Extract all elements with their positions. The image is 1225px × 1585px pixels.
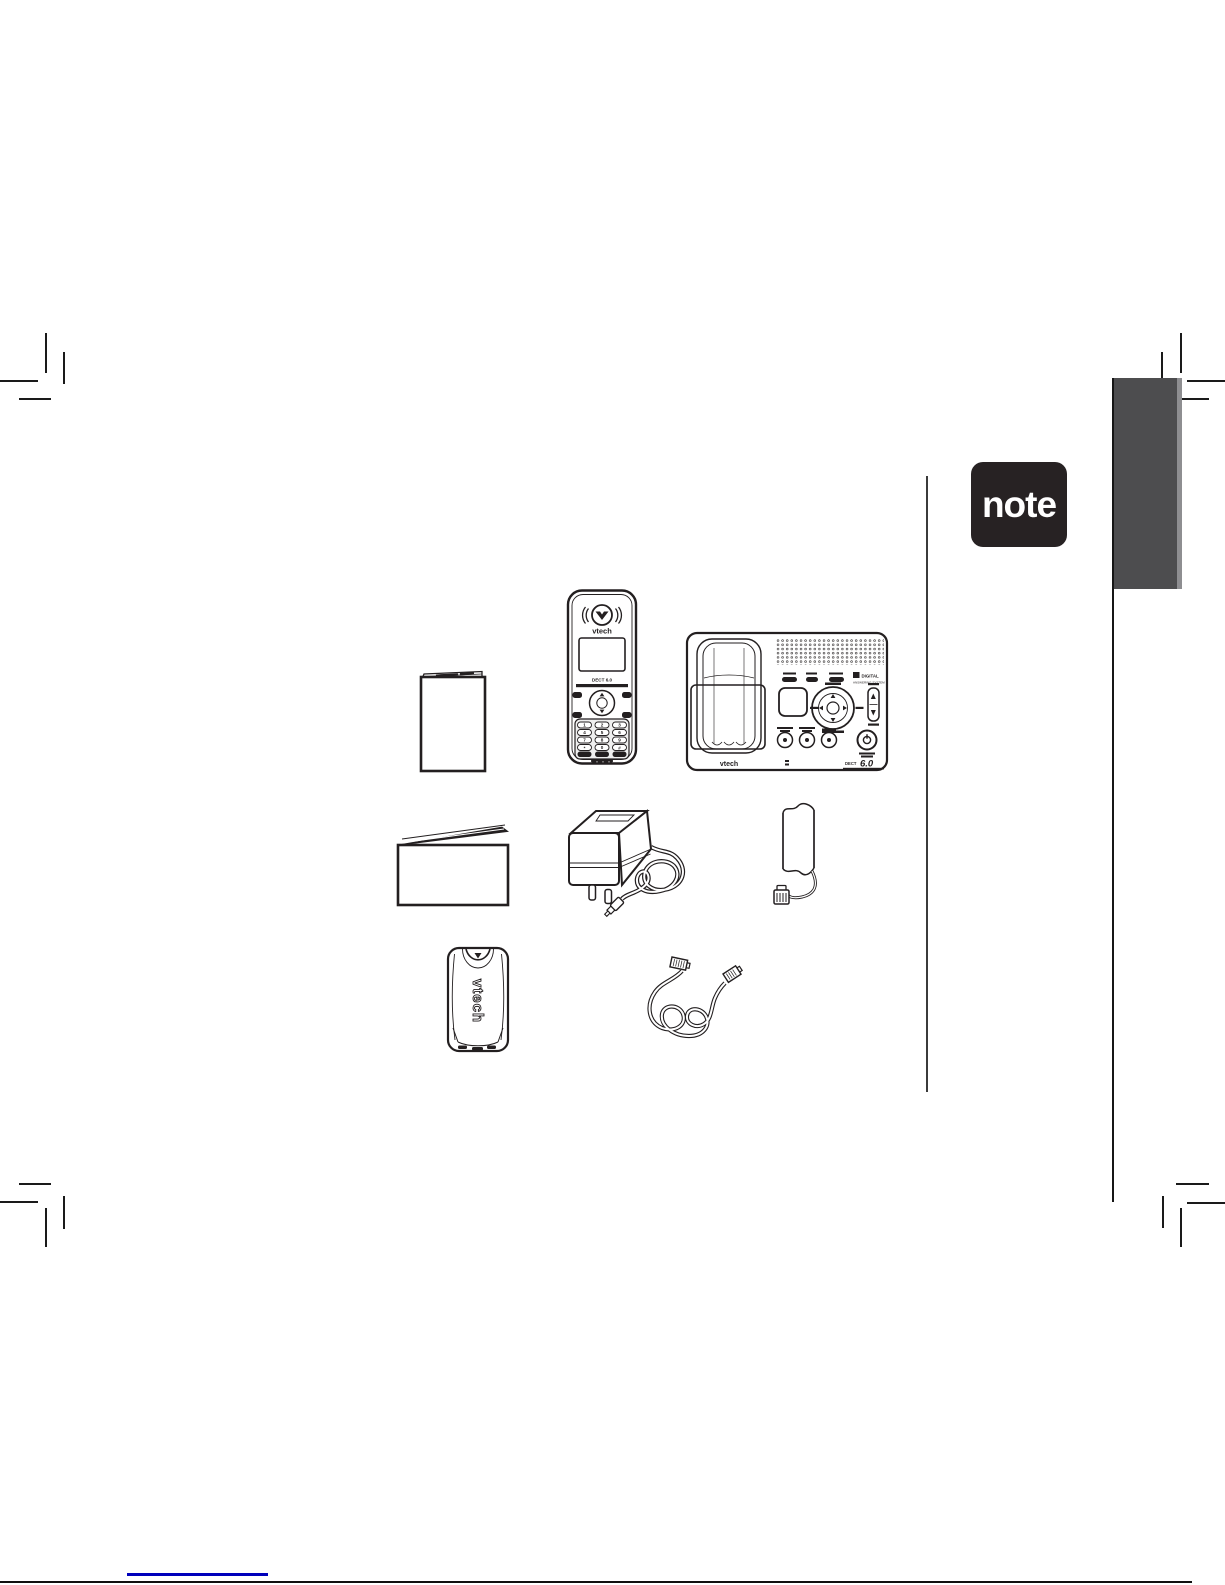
svg-text:2: 2 [601,723,604,728]
base-power-button [858,731,877,758]
svg-text:DIGITAL: DIGITAL [862,673,880,678]
crop-mark [63,1196,65,1229]
svg-text:1: 1 [583,723,586,728]
booklet-portrait-illustration [414,666,492,776]
svg-text:8: 8 [601,738,604,743]
crop-mark [1162,1196,1164,1228]
manual-page: note vtech DECT 6.0 [0,0,1225,1585]
battery-cover-illustration: vtech [441,944,515,1058]
handset-illustration: vtech DECT 6.0 [564,588,640,766]
base-top-buttons [782,673,844,683]
battery-cover-brand-label: vtech [469,979,486,1023]
crop-mark [1176,1183,1209,1185]
base-display-button [779,688,807,716]
svg-text:4: 4 [583,730,586,735]
page-bottom-edge [0,1581,1192,1583]
base-cradle [691,639,765,753]
battery-connector [774,886,789,905]
adapter-front-face [569,833,619,885]
power-adapter-illustration [556,800,701,920]
base-round-buttons [777,727,837,748]
telephone-cord-illustration [622,952,748,1058]
base-volume-rocker [868,683,879,726]
battery-wire [789,871,816,898]
svg-text:DECT: DECT [845,761,857,766]
svg-text:7: 7 [583,738,586,743]
handset-dect-label: DECT 6.0 [592,678,613,683]
footer-blue-line [127,1573,268,1576]
handset-mic-grille [591,760,613,763]
svg-text:#: # [618,746,621,751]
adapter-prongs [589,885,612,904]
crop-mark [45,1208,47,1247]
base-jack-mark [785,760,789,766]
svg-text:0: 0 [601,745,604,750]
note-badge: note [971,462,1067,547]
battery-illustration [762,798,824,912]
rj11-plug-2 [723,964,744,982]
earpiece-logo-icon [583,605,622,625]
crop-mark [1180,1208,1182,1247]
base-speaker-grille [776,638,884,665]
telephone-base-illustration: vtech DIGITAL ANSWERING SYSTEM [684,626,892,776]
svg-text:6: 6 [618,730,621,735]
handset-brand-label: vtech [592,627,612,636]
handset-screen [579,638,625,671]
crop-mark [19,398,51,400]
crop-mark [1187,380,1225,382]
svg-text:*: * [584,746,586,751]
crop-mark [45,333,47,373]
svg-text:9: 9 [618,738,621,743]
crop-mark [0,380,38,382]
svg-text:3: 3 [618,723,621,728]
vertical-rule [926,476,928,1092]
crop-mark [1187,1202,1225,1204]
booklet-landscape-illustration [392,818,516,910]
crop-mark [19,1183,51,1185]
handset-nav-pad [573,691,632,719]
note-badge-label: note [982,484,1056,526]
svg-text:5: 5 [601,730,604,735]
crop-mark [1180,333,1182,373]
section-side-tab [1113,378,1182,589]
base-brand-label: vtech [720,761,738,768]
crop-mark [0,1201,38,1203]
base-dial [810,683,864,734]
base-dect-logo: DECT 6.0 [843,759,884,770]
crop-mark [63,352,65,384]
page-edge-line [1112,378,1114,1202]
base-digital-logo: DIGITAL ANSWERING SYSTEM [853,672,885,685]
handset-keypad: 1 2 3 4 5 6 7 8 9 * 0 # [575,719,629,759]
rj11-plug-1 [670,957,691,971]
